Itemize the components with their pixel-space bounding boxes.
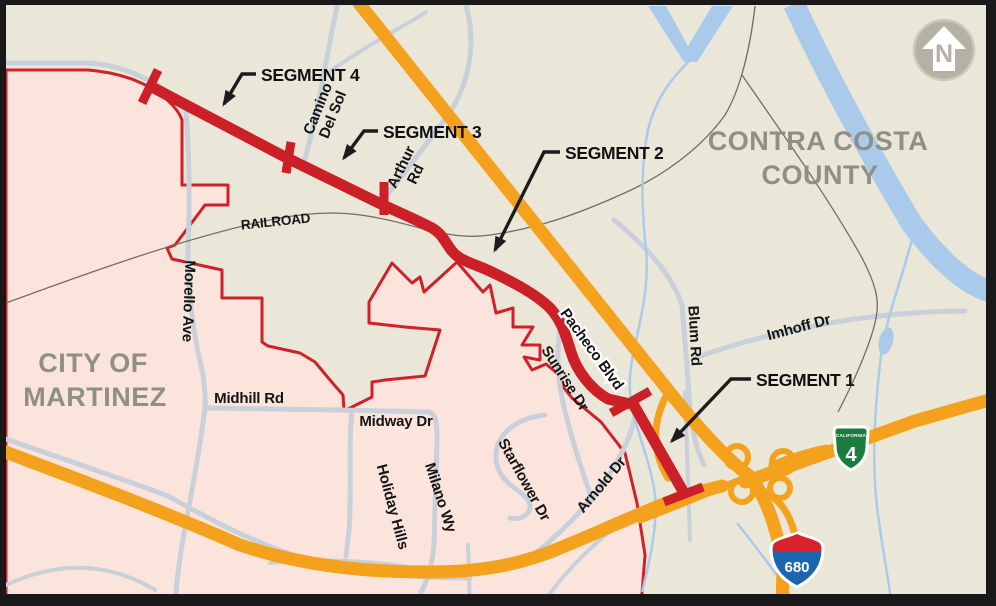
- county-label-line2: COUNTY: [762, 160, 879, 190]
- ca-4-shield-number: 4: [845, 444, 857, 466]
- ca-4-shield-state: CALIFORNIA: [836, 433, 867, 438]
- north-arrow: N: [914, 20, 974, 80]
- city-label-line2: MARTINEZ: [23, 382, 166, 412]
- segment-4-label: SEGMENT 4: [261, 65, 360, 85]
- midhill-rd-label: Midhill Rd: [214, 390, 284, 407]
- north-arrow-letter: N: [935, 40, 953, 68]
- city-label-line1: CITY OF: [38, 348, 148, 378]
- midway-dr-label: Midway Dr: [359, 413, 433, 430]
- blum-rd-label: Blum Rd: [684, 305, 704, 366]
- segment-3-label: SEGMENT 3: [383, 122, 482, 142]
- segment-4-3-tick: [286, 142, 291, 173]
- map-canvas: CITY OF MARTINEZ CONTRA COSTA COUNTY RAI…: [0, 0, 996, 606]
- project-segments-map: CITY OF MARTINEZ CONTRA COSTA COUNTY RAI…: [0, 0, 996, 606]
- morello-ave-label: Morello Ave: [179, 260, 199, 342]
- i-680-shield-number: 680: [784, 559, 809, 576]
- segment-1-label: SEGMENT 1: [756, 370, 855, 390]
- county-label-line1: CONTRA COSTA: [708, 126, 928, 156]
- segment-2-label: SEGMENT 2: [565, 143, 664, 163]
